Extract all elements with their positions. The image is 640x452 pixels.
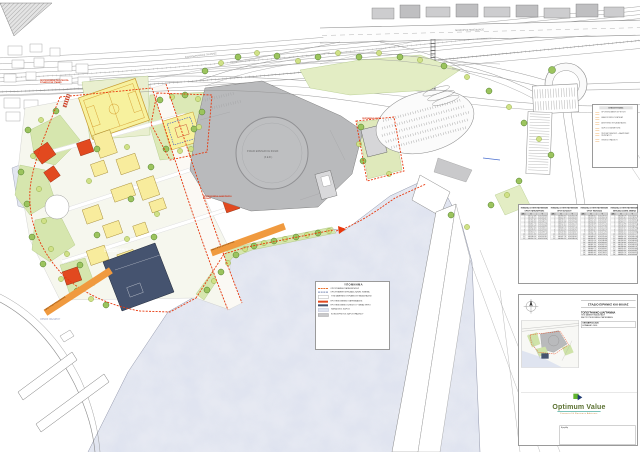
table-row: 20466412.064202774.75 [581, 254, 608, 256]
legend-item: ΘΑΛΑΣΣΙΟΣ ΧΩΡΟΣ [318, 308, 389, 312]
coordinate-tables-panel: ΠΙΝΑΚΑΣ ΣΥΝΤΕΤΑΓΜΕΝΩΝ ΟΡΙΟΥ ΠΑΡΑΧΩΡΗΣΗΣ … [518, 204, 638, 284]
legend-item-label: ΟΡΙΟΓΡΑΜΜΗ ΧΕΡΣΑΙΑΣ ΖΩΝΗΣ ΛΙΜΕΝΑ [330, 291, 369, 293]
interventions-item-label: ΧΩΡΟΣ ΣΤΑΘΜΕΥΣΗΣ [601, 127, 620, 129]
legend-item: ΠΡΟΤΕΙΝΟΜΕΝΕΣ ΠΑΡΕΜΒΑΣΕΙΣ [318, 300, 389, 302]
interventions-item: ΑΘΛΗΤΙΚΕΣ ΕΓΚΑΤΑΣΤΑΣΕΙΣ [595, 122, 638, 125]
interventions-item-label: ΠΡΟΤΕΙΝΟΜΕΝΗ ΦΥΤΕΥΣΗ [601, 111, 625, 113]
legend-title: ΥΠΟΜΝΗΜΑ [318, 283, 389, 286]
table-title: ΠΙΝΑΚΑΣ ΣΥΝΤΕΤΑΓΜΕΝΩΝ [521, 207, 548, 209]
legend-item-label: ΥΦΙΣΤΑΜΕΝΕΣ ΚΤΙΡΙΑΚΕΣ ΕΓΚΑΤΑΣΤΑΣΕΙΣ [331, 295, 372, 297]
table-row: 12466160.254202589.14 [551, 238, 578, 240]
orange-marker-icon [595, 140, 599, 142]
legend-swatch [318, 292, 328, 293]
legend-swatch [318, 288, 328, 289]
coordinate-table-4: ΠΙΝΑΚΑΣ ΣΥΝΤΕΤΑΓΜΕΝΩΝ ΧΕΡΣΑΙΑΣ ΖΩΝΗΣ ΛΙΜ… [611, 207, 638, 283]
interventions-item-label: ΑΘΛΗΤΙΚΕΣ ΕΓΚΑΤΑΣΤΑΣΕΙΣ [601, 122, 626, 124]
coordinate-table-2: ΠΙΝΑΚΑΣ ΣΥΝΤΕΤΑΓΜΕΝΩΝ ΟΡΙΟΥ ΑΙΓΙΑΛΟΥ Α/Α… [551, 207, 578, 283]
interventions-panel: ΕΠΕΞΗΓΗΣΕΙΣ ΠΡΟΤΕΙΝΟΜΕΝΗ ΦΥΤΕΥΣΗ ΔΙΑΜΟΡΦ… [592, 104, 638, 168]
orange-marker-icon [595, 112, 599, 114]
drawing-subtitle: ΚΑΙ ΠΡΟΤΕΙΝΟΜΕΝΗ ΠΑΡΕΜΒΑΣΗ [581, 317, 636, 319]
legend-swatch [318, 301, 328, 303]
legend-item: ΚΟΙΝΟΧΡΗΣΤΟΙ ΧΩΡΟΙ ΠΡΑΣΙΝΟΥ [318, 313, 389, 317]
coordinate-table-3: ΠΙΝΑΚΑΣ ΣΥΝΤΕΤΑΓΜΕΝΩΝ ΟΡΙΟΥ ΠΑΡΑΛΙΑΣ Α/Α… [581, 207, 608, 283]
sea-label: ΟΡΜΟΣ ΦΑΛΗΡΟΥ [40, 318, 61, 321]
interventions-item: ΧΩΡΟΣ ΣΤΑΘΜΕΥΣΗΣ [595, 127, 638, 130]
table-row: 12465952.704202574.26 [521, 238, 548, 240]
interventions-item: ΠΡΟΤΕΙΝΟΜΕΝΗ ΦΥΤΕΥΣΗ [595, 111, 638, 114]
table-title: ΠΙΝΑΚΑΣ ΣΥΝΤΕΤΑΓΜΕΝΩΝ [551, 207, 578, 209]
approval-box: Εγκρίθη [560, 426, 636, 445]
north-buildings [372, 4, 624, 19]
interventions-item-label: ΠΕΖΟΔΡΟΜΗΣΕΙΣ - ΔΙΑΔΡΟΜΕΣ ΠΕΡΙΠΑΤΟΥ [601, 133, 637, 137]
southwest-coast [0, 294, 109, 452]
drawing-scale: ΚΛΙΜΑΚΑ 1:1000 [582, 325, 634, 327]
legend-item-label: ΘΑΛΑΣΣΙΟΣ ΧΩΡΟΣ [331, 308, 350, 310]
interventions-title: ΕΠΕΞΗΓΗΣΕΙΣ [599, 106, 632, 109]
interventions-item: ΔΙΑΜΟΡΦΩΣΗ ΠΛΑΤΕΙΑΣ [595, 117, 638, 120]
legend-panel: ΥΠΟΜΝΗΜΑ ΟΡΙΟΓΡΑΜΜΗ ΠΑΡΑΧΩΡΗΣΗΣ ΟΡΙΟΓΡΑΜ… [315, 281, 390, 350]
annotation-bridge: ΠΡΟΤΕΙΝΟΜΕΝΗ ΠΕΖΟΓΕΦΥΡΑ ΣΥΝΔΕΣΗΣ ΜΕ ΣΤΑΘ… [40, 80, 136, 92]
interventions-item-label: ΘΕΣΕΙΣ ΠΡΑΣΙΝΟΥ [601, 139, 617, 141]
table-title: ΠΙΝΑΚΑΣ ΣΥΝΤΕΤΑΓΜΕΝΩΝ [611, 207, 638, 209]
legend-item: ΟΡΙΟΓΡΑΜΜΗ ΠΑΡΑΧΩΡΗΣΗΣ [318, 288, 389, 290]
interventions-item-label: ΔΙΑΜΟΡΦΩΣΗ ΠΛΑΤΕΙΑΣ [601, 117, 623, 119]
legend-swatch [318, 295, 329, 298]
interventions-item: ΘΕΣΕΙΣ ΠΡΑΣΙΝΟΥ [595, 139, 638, 142]
legend-item-label: ΠΡΟΤΕΙΝΟΜΕΝΕΣ ΠΑΡΕΜΒΑΣΕΙΣ [330, 300, 362, 302]
logo-wordmark: Optimum Value [519, 403, 639, 410]
circular-plaza [45, 195, 69, 219]
company-logo: Optimum Value Financial & Business Advis… [519, 394, 639, 415]
location-minimap [522, 320, 579, 367]
stadium-esplanade [190, 81, 363, 211]
legend-list: ΟΡΙΟΓΡΑΜΜΗ ΠΑΡΑΧΩΡΗΣΗΣ ΟΡΙΟΓΡΑΜΜΗ ΧΕΡΣΑΙ… [318, 288, 389, 317]
legend-item-label: ΚΟΙΝΟΧΡΗΣΤΟΙ ΧΩΡΟΙ ΠΡΑΣΙΝΟΥ [331, 313, 363, 315]
logo-tagline: Financial & Business Advisors [519, 412, 639, 414]
optimum-value-logo-icon [573, 394, 584, 402]
annotation-existing: ΥΦΙΣΤΑΜΕΝΟ ΚΤΙΡΙΟ [362, 118, 458, 124]
orange-marker-icon [595, 117, 599, 119]
legend-item: ΠΡΟΤΕΙΝΟΜΕΝΟ ΚΛΕΙΣΤΟ ΓΥΜΝΑΣΤΗΡΙΟ [318, 304, 389, 306]
date-scale-box: ΟΚΤΩΒΡΙΟΣ 2020 ΚΛΙΜΑΚΑ 1:1000 [581, 321, 636, 328]
approval-label: Εγκρίθη [560, 426, 635, 429]
annotation-entrance: ΠΡΟΤΕΙΝΟΜΕΝΗ ΔΙΑΜΟΡΦΩΣΗ ΕΙΣΟΔΟΥ [203, 196, 299, 208]
project-title: ΣΤΑΔΙΟ ΕΙΡΗΝΗΣ ΚΑΙ ΦΙΛΙΑΣ [581, 302, 636, 307]
legend-item: ΥΦΙΣΤΑΜΕΝΕΣ ΚΤΙΡΙΑΚΕΣ ΕΓΚΑΤΑΣΤΑΣΕΙΣ [318, 295, 389, 299]
orange-marker-icon [595, 128, 599, 130]
legend-swatch [318, 308, 329, 311]
coordinate-table-1: ΠΙΝΑΚΑΣ ΣΥΝΤΕΤΑΓΜΕΝΩΝ ΟΡΙΟΥ ΠΑΡΑΧΩΡΗΣΗΣ … [521, 207, 548, 283]
drawing-sheet: ΣΤΑΔΙΟ ΕΙΡΗΝΗΣ ΚΑΙ ΦΙΛΙΑΣ (Σ.Ε.Φ.) ΛΕΩΦΟ… [0, 0, 640, 452]
table-row: 20466898.144202493.08 [611, 254, 638, 256]
legend-item-label: ΠΡΟΤΕΙΝΟΜΕΝΟ ΚΛΕΙΣΤΟ ΓΥΜΝΑΣΤΗΡΙΟ [330, 304, 370, 306]
orange-marker-icon [595, 133, 599, 135]
legend-item: ΟΡΙΟΓΡΑΜΜΗ ΧΕΡΣΑΙΑΣ ΖΩΝΗΣ ΛΙΜΕΝΑ [318, 291, 389, 293]
interventions-item: ΠΕΖΟΔΡΟΜΗΣΕΙΣ - ΔΙΑΔΡΟΜΕΣ ΠΕΡΙΠΑΤΟΥ [595, 133, 638, 137]
interventions-list: ΠΡΟΤΕΙΝΟΜΕΝΗ ΦΥΤΕΥΣΗ ΔΙΑΜΟΡΦΩΣΗ ΠΛΑΤΕΙΑΣ… [595, 111, 638, 142]
title-block: ΣΤΑΔΙΟ ΕΙΡΗΝΗΣ ΚΑΙ ΦΙΛΙΑΣ ΤΟΠΟΓΡΑΦΙΚΟ ΔΙ… [518, 294, 638, 446]
annotation-gym: ΠΡΟΤΕΙΝΟΜΕΝΟ ΚΛΕΙΣΤΟ ΓΥΜΝΑΣΤΗΡΙΟ [104, 249, 200, 261]
north-arrow-icon [523, 298, 539, 314]
table-title: ΠΙΝΑΚΑΣ ΣΥΝΤΕΤΑΓΜΕΝΩΝ [581, 207, 608, 209]
legend-item-label: ΟΡΙΟΓΡΑΜΜΗ ΠΑΡΑΧΩΡΗΣΗΣ [330, 288, 359, 290]
legend-swatch [318, 304, 328, 306]
orange-marker-icon [595, 123, 599, 125]
legend-swatch [318, 313, 329, 316]
